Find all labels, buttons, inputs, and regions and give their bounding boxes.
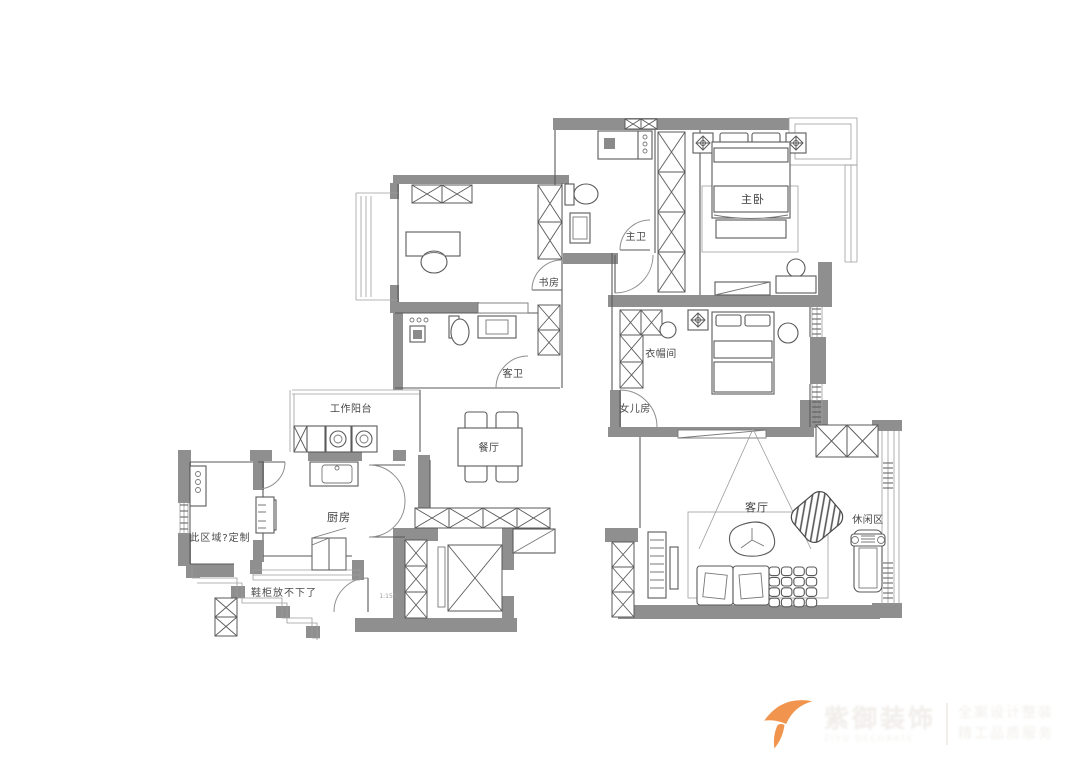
room-label-kitchen: 厨房 [327,511,351,524]
garden-shelf [190,466,206,506]
floor-plan-page: 主卧 主卫 书房 客卫 衣帽间 女儿房 餐厅 客厅 休闲区 工作阳台 厨房 此区… [0,0,1080,768]
brand-logo-icon [760,688,814,760]
window-kitchen-bottom [253,570,360,580]
room-label-leisure: 休闲区 [852,513,884,526]
room-label-living: 客厅 [745,500,769,514]
brand-tagline-2: 精工品质服务 [958,724,1054,745]
door-kitchen-double [369,465,405,537]
brand-subtitle: ZIYU DECORATE [824,734,936,743]
window-balcony-steps [192,566,320,640]
master-bath-fixtures [565,131,652,243]
low-cabinet [715,282,770,295]
watermark-divider [946,703,948,745]
guest-bath-fixtures [410,316,516,345]
window-garden-left [180,502,188,535]
master-bedroom-furniture [693,133,816,295]
desk [406,232,460,273]
brand-name-block: 紫御装饰 ZIYU DECORATE [824,706,936,743]
entry-shelf [438,547,445,607]
room-label-daughter-room: 女儿房 [619,402,651,415]
room-label-guest-bath: 客卫 [503,367,524,380]
laundry-units [307,426,377,452]
room-label-master-bath: 主卫 [626,231,647,243]
room-label-work-balcony: 工作阳台 [330,402,372,415]
window-study [356,193,398,300]
sofa [697,566,817,607]
room-label-cloakroom: 衣帽间 [645,347,677,360]
hall-shelf [478,303,528,313]
brand-name: 紫御装饰 [824,706,936,731]
bed-bench [716,220,786,238]
window-master-right [845,165,857,262]
note-shoe-cabinet: 鞋柜放不下了 [251,586,317,599]
floor-plan: 主卧 主卫 书房 客卫 衣帽间 女儿房 餐厅 客厅 休闲区 工作阳台 厨房 此区… [0,0,1080,768]
window-living-right [882,431,899,605]
coffee-table [729,522,774,556]
note-scale: 1:150 [379,593,396,600]
fridge [312,528,346,570]
brand-watermark: 紫御装饰 ZIYU DECORATE 全案设计整装 精工品质服务 [760,688,1054,760]
bed-daughter [712,312,774,394]
room-label-dining: 餐厅 [479,441,500,454]
brand-tagline-block: 全案设计整装 精工品质服务 [958,703,1054,745]
note-custom-area: 此区域?定制 [189,531,250,544]
barrel-chair [787,488,846,547]
door-master-bedroom [615,255,653,293]
door-entry [334,578,368,612]
ottoman-grid [769,567,817,607]
dresser [776,259,816,293]
entry-cabinet-right [513,529,555,553]
room-label-master-bedroom: 主卧 [741,193,765,206]
tv-cabinet [648,532,678,598]
side-cabinet [256,497,274,533]
brand-tagline-1: 全案设计整装 [958,703,1054,724]
room-label-study: 书房 [539,276,560,289]
treadmill [851,530,885,592]
daughter-room-furniture [660,310,798,438]
window-seat [678,430,766,438]
